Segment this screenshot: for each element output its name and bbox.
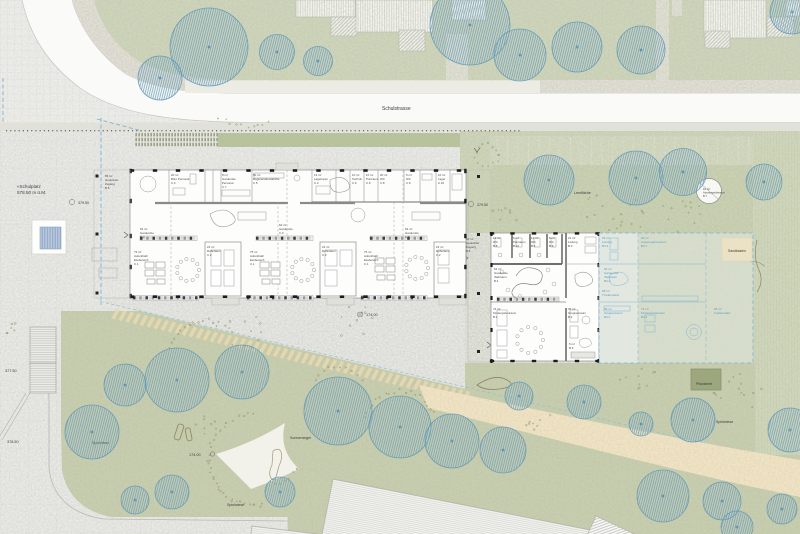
svg-text:C.9: C.9 [406,181,411,185]
svg-text:«Schulplatz: «Schulplatz [17,184,41,189]
svg-text:Lernfläche: Lernfläche [574,191,591,195]
svg-text:C.4: C.4 [171,181,176,185]
svg-text:B.8: B.8 [493,244,498,248]
svg-text:B.1: B.1 [493,315,498,319]
svg-text:377.50: 377.50 [5,369,17,373]
svg-text:C.4: C.4 [314,181,319,185]
svg-text:379.50: 379.50 [477,203,488,207]
svg-text:B.3: B.3 [568,244,573,248]
svg-text:B.9: B.9 [549,244,554,248]
svg-text:B.4: B.4 [494,279,499,283]
svg-text:C.1: C.1 [134,262,139,266]
svg-text:C.2: C.2 [322,253,327,257]
svg-text:C.8: C.8 [380,181,385,185]
svg-text:Trockenplatz: Trockenplatz [602,293,620,297]
svg-text:C.3: C.3 [140,235,145,239]
svg-text:C.5: C.5 [253,181,258,185]
svg-text:Schulstrasse: Schulstrasse [382,106,411,112]
svg-text:378.50: 378.50 [7,440,19,444]
svg-text:C.10: C.10 [438,181,444,185]
svg-text:C.6: C.6 [352,181,357,185]
svg-text:Aussengeräteraum: Aussengeräteraum [703,191,725,195]
svg-text:Spielwiese: Spielwiese [716,420,733,424]
svg-text:C.1: C.1 [250,262,255,266]
svg-text:B4.2: B4.2 [604,315,611,319]
svg-text:B.6: B.6 [531,244,536,248]
svg-text:C.3: C.3 [279,231,284,235]
svg-text:C.2: C.2 [207,253,212,257]
svg-text:B.2: B.2 [568,315,573,319]
svg-text:174.00: 174.00 [189,453,201,457]
svg-text:B.5: B.5 [105,186,110,190]
svg-text:B.5: B.5 [466,249,471,253]
svg-text:Sandkasten: Sandkasten [728,249,746,253]
svg-text:B4.4: B4.4 [604,279,611,283]
svg-text:B.6: B.6 [569,346,574,350]
svg-text:Spielwiese: Spielwiese [227,503,244,507]
svg-text:C.2: C.2 [436,253,441,257]
svg-text:B.7: B.7 [703,194,707,198]
svg-text:Sonnensegel: Sonnensegel [290,436,311,440]
svg-text:B4.3: B4.3 [602,244,609,248]
svg-text:Freilernplatz: Freilernplatz [714,311,731,315]
svg-text:B.10: B.10 [513,244,519,248]
svg-text:B4.7: B4.7 [641,244,648,248]
svg-text:C.1: C.1 [364,262,369,266]
svg-text:B4.1: B4.1 [641,315,648,319]
svg-text:C.6: C.6 [366,181,371,185]
svg-text:379.50: 379.50 [78,201,89,205]
svg-text:174.00: 174.00 [366,313,378,317]
svg-text:Pflanzbeet: Pflanzbeet [696,382,712,386]
svg-text:10 m²: 10 m² [703,187,710,191]
svg-text:C.3: C.3 [405,235,410,239]
svg-text:C.7: C.7 [222,185,227,189]
svg-text:578.50 m ü.M.: 578.50 m ü.M. [17,190,46,195]
